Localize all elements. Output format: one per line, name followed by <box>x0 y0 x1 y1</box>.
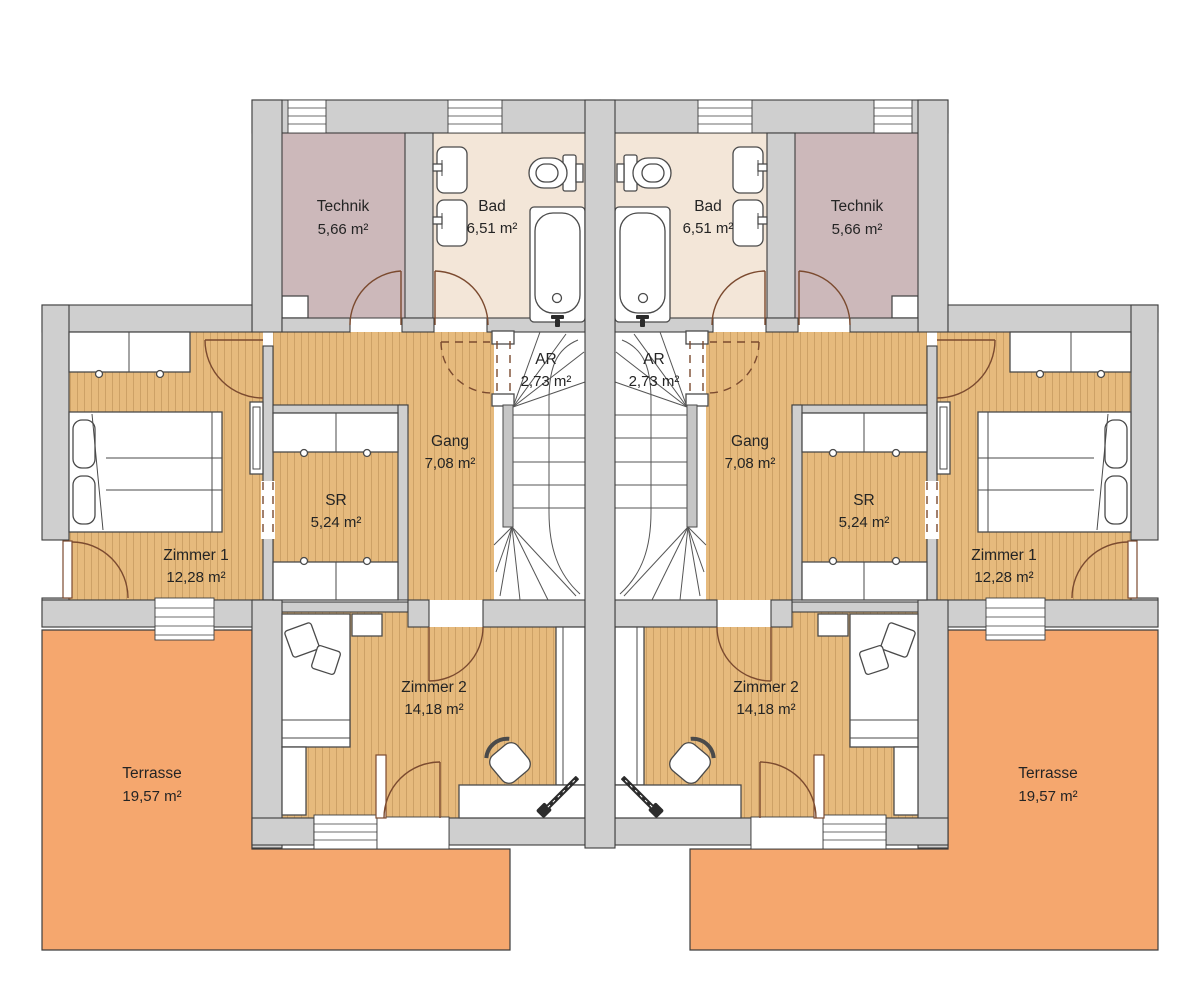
area-technik-left: 5,66 m² <box>318 221 369 238</box>
label-terrasse-left: Terrasse <box>122 765 181 782</box>
label-technik-right: Technik <box>831 198 884 215</box>
area-zimmer1-left: 12,28 m² <box>166 569 225 586</box>
area-zimmer2-left: 14,18 m² <box>404 701 463 718</box>
label-gang-right: Gang <box>731 433 769 450</box>
area-zimmer2-right: 14,18 m² <box>736 701 795 718</box>
area-sr-left: 5,24 m² <box>311 514 362 531</box>
area-ar-left: 2,73 m² <box>521 373 572 390</box>
label-gang-left: Gang <box>431 433 469 450</box>
label-terrasse-right: Terrasse <box>1018 765 1077 782</box>
ar-frame-cap <box>492 394 514 406</box>
bathtub <box>530 207 585 327</box>
nightstand <box>352 614 382 636</box>
label-technik-left: Technik <box>317 198 370 215</box>
window-zimmer2 <box>314 815 377 849</box>
area-terrasse-left: 19,57 m² <box>122 788 181 805</box>
label-zimmer1-right: Zimmer 1 <box>971 547 1036 564</box>
area-terrasse-right: 19,57 m² <box>1018 788 1077 805</box>
area-bad-right: 6,51 m² <box>683 220 734 237</box>
floor-plan: Technik 5,66 m² Bad 6,51 m² AR 2,73 m² G… <box>0 0 1200 1000</box>
radiator <box>250 402 263 474</box>
window-zimmer1 <box>155 598 214 640</box>
ar-frame-cap <box>492 331 514 344</box>
area-sr-right: 5,24 m² <box>839 514 890 531</box>
label-ar-left: AR <box>535 351 557 368</box>
label-ar-right: AR <box>643 351 665 368</box>
stair-railing <box>503 405 513 527</box>
label-bad-left: Bad <box>478 198 506 215</box>
terrace-door-opening <box>377 817 449 849</box>
area-bad-left: 6,51 m² <box>467 220 518 237</box>
party-wall <box>585 100 615 848</box>
label-sr-right: SR <box>853 492 875 509</box>
label-zimmer1-left: Zimmer 1 <box>163 547 228 564</box>
area-zimmer1-right: 12,28 m² <box>974 569 1033 586</box>
opening-zimmer1-sr-dashed <box>261 481 275 539</box>
label-bad-right: Bad <box>694 198 722 215</box>
label-zimmer2-right: Zimmer 2 <box>733 679 798 696</box>
dresser <box>282 747 306 815</box>
area-ar-right: 2,73 m² <box>629 373 680 390</box>
wardrobe <box>69 332 190 378</box>
double-bed <box>69 412 222 532</box>
sink <box>433 147 467 193</box>
area-gang-right: 7,08 m² <box>725 455 776 472</box>
single-bed <box>282 614 350 747</box>
window-technik <box>288 100 326 133</box>
label-zimmer2-left: Zimmer 2 <box>401 679 466 696</box>
shaft <box>282 296 308 318</box>
sink <box>433 200 467 246</box>
label-sr-left: SR <box>325 492 347 509</box>
window-bad <box>448 100 502 133</box>
wardrobe-tall <box>556 627 585 785</box>
toilet <box>529 155 583 191</box>
area-technik-right: 5,66 m² <box>832 221 883 238</box>
area-gang-left: 7,08 m² <box>425 455 476 472</box>
